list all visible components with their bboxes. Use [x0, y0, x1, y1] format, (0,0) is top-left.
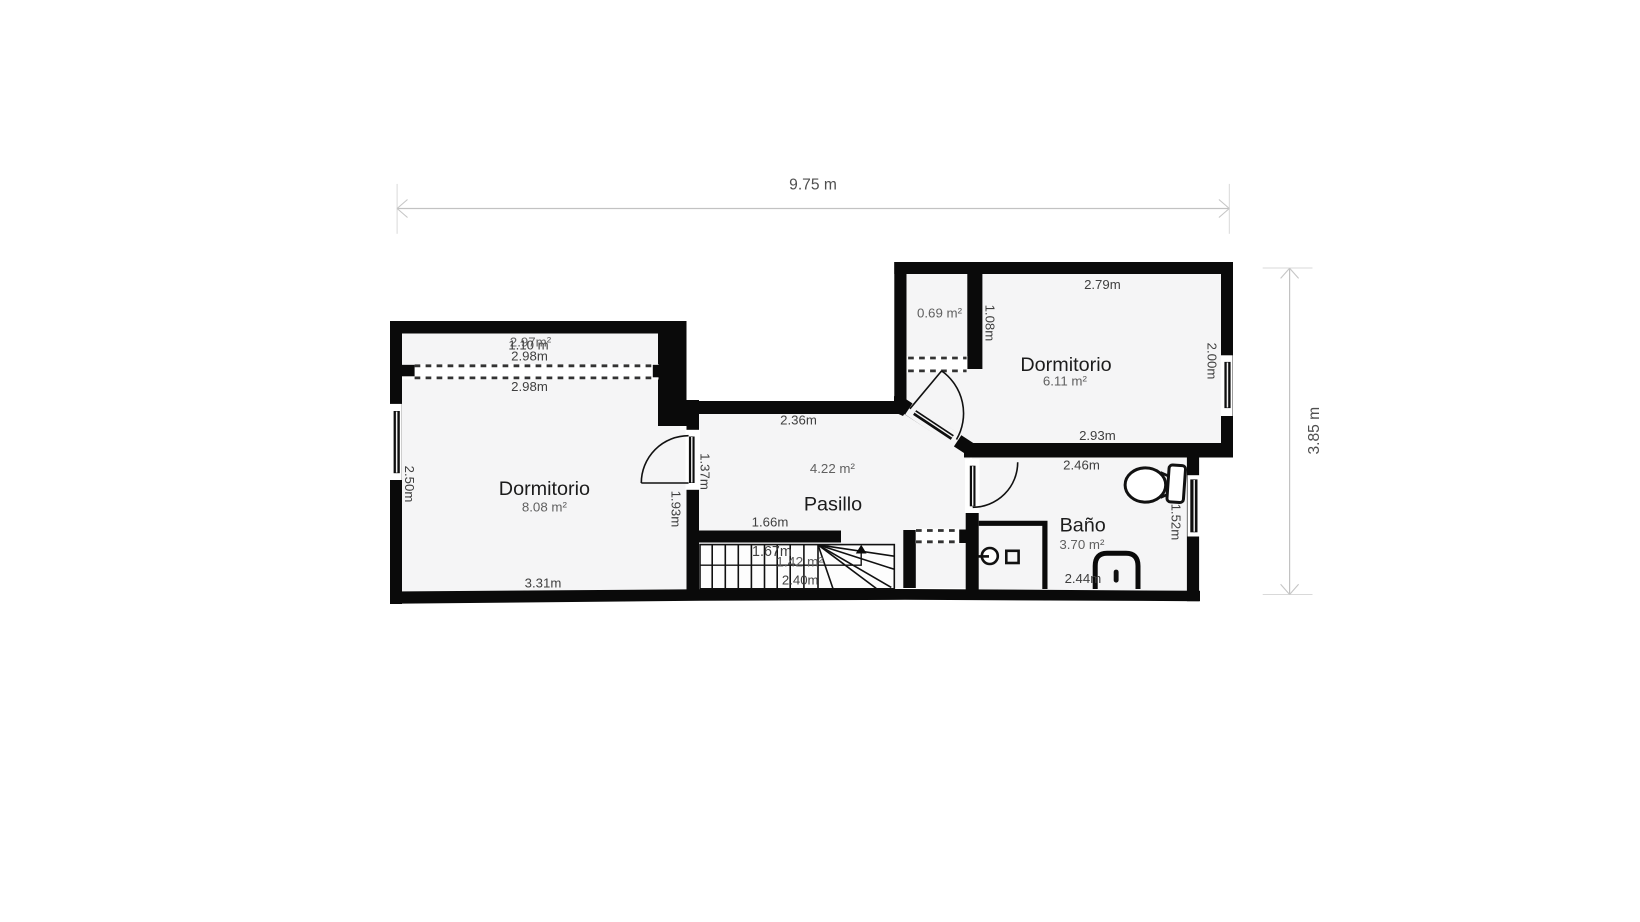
svg-text:3.70 m²: 3.70 m²: [1059, 537, 1105, 552]
svg-text:1.66m: 1.66m: [752, 515, 789, 530]
svg-text:2.93m: 2.93m: [1079, 428, 1116, 443]
svg-text:2.79m: 2.79m: [1084, 277, 1121, 292]
svg-text:2.00m: 2.00m: [1205, 343, 1220, 380]
svg-text:1.42 m²: 1.42 m²: [776, 554, 823, 570]
svg-text:2.50m: 2.50m: [402, 466, 417, 503]
svg-text:0.69 m²: 0.69 m²: [917, 306, 963, 321]
svg-text:2.40m: 2.40m: [782, 573, 819, 588]
svg-text:8.08 m²: 8.08 m²: [522, 499, 568, 514]
svg-text:3.85 m: 3.85 m: [1306, 407, 1323, 455]
svg-text:1.52m: 1.52m: [1169, 504, 1184, 541]
svg-text:9.75 m: 9.75 m: [789, 176, 837, 193]
svg-text:Dormitorio: Dormitorio: [499, 478, 590, 500]
svg-text:6.11 m²: 6.11 m²: [1043, 374, 1088, 389]
svg-text:2.98m: 2.98m: [511, 349, 548, 364]
svg-text:1.37m: 1.37m: [697, 453, 712, 490]
svg-text:Pasillo: Pasillo: [804, 494, 862, 516]
svg-text:2.98m: 2.98m: [511, 379, 548, 394]
svg-text:Baño: Baño: [1060, 515, 1106, 537]
svg-text:4.22 m²: 4.22 m²: [810, 461, 856, 476]
svg-text:1.08m: 1.08m: [983, 305, 998, 342]
svg-text:1.93m: 1.93m: [669, 491, 684, 528]
svg-text:3.31m: 3.31m: [525, 576, 562, 591]
svg-text:2.36m: 2.36m: [780, 412, 817, 427]
svg-text:2.44m: 2.44m: [1065, 571, 1102, 586]
svg-text:2.46m: 2.46m: [1063, 458, 1100, 473]
